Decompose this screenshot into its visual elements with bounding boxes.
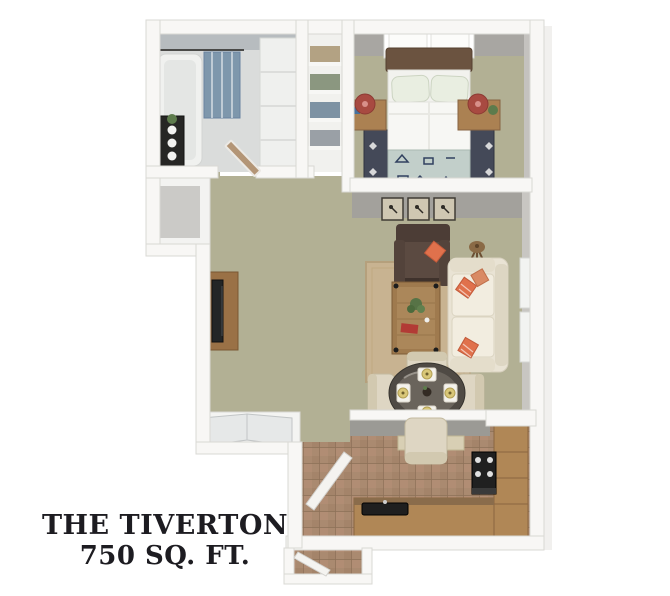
closet-shelf	[306, 62, 344, 66]
sofa-arm	[450, 258, 495, 272]
pillow	[391, 75, 429, 103]
lamp-top	[362, 101, 368, 107]
sliding-door-panel	[247, 414, 292, 446]
plan-title-line2: 750 SQ. FT.	[40, 541, 290, 572]
centerpiece-plant	[423, 386, 427, 390]
wall-kitchen-north-right	[486, 410, 536, 426]
bird-frame	[382, 198, 403, 220]
closet-shelf	[306, 146, 344, 150]
sofa-back	[495, 264, 508, 366]
entry-nook-wall-bottom	[284, 574, 372, 584]
plan-title: THE TIVERTON 750 SQ. FT.	[40, 510, 290, 572]
wall-closet-bedroom-divider	[342, 20, 354, 192]
bird-frame	[434, 198, 455, 220]
plant-icon	[167, 114, 177, 124]
wall-bottom-kitchen	[286, 536, 544, 550]
sofa-arm	[450, 358, 495, 372]
wall-right	[530, 20, 544, 550]
chair-back	[475, 374, 484, 414]
wall-bedroom-south	[350, 178, 532, 192]
towel-roll	[168, 139, 177, 148]
kitchen-counter-right	[494, 426, 528, 536]
wall-entry-left	[288, 442, 302, 548]
chair-back	[407, 352, 447, 361]
wall-bath-closet-divider	[296, 20, 308, 178]
wall-bottom-left	[196, 442, 302, 454]
wall-outer-shadow	[544, 26, 552, 550]
range-icon	[472, 452, 496, 494]
floor-plan-svg	[0, 0, 670, 596]
tall-cabinet	[260, 38, 298, 170]
closet-shelf	[306, 118, 344, 122]
towel-roll	[168, 152, 177, 161]
closet-shelf	[306, 90, 344, 94]
dining-chair	[405, 418, 447, 464]
plant-icon	[407, 305, 415, 313]
wall-left-lower	[196, 244, 210, 454]
plan-title-line1: THE TIVERTON	[40, 510, 290, 541]
lamp-top	[475, 101, 481, 107]
red-books	[401, 323, 419, 334]
floor-plan-image: THE TIVERTON 750 SQ. FT.	[0, 0, 670, 596]
hall-closet-face	[156, 186, 200, 238]
faucet-icon	[383, 500, 387, 504]
armchair	[394, 224, 450, 286]
wall-bath-south-left	[146, 166, 218, 178]
chair-back	[368, 374, 377, 414]
armchair-arm	[394, 240, 405, 286]
wall-art-frames	[382, 198, 455, 220]
bird-frame	[408, 198, 429, 220]
pillow	[430, 75, 468, 103]
coffee-table	[392, 282, 440, 354]
headboard	[386, 48, 472, 72]
towel-stack	[310, 74, 340, 90]
plant-icon	[417, 305, 425, 313]
wall-left-upper	[146, 20, 160, 254]
sofa	[448, 258, 508, 372]
chair-back	[405, 452, 447, 464]
sink-icon	[362, 503, 408, 515]
towel-stack	[310, 102, 340, 118]
plant-icon	[488, 105, 498, 115]
towel-stack	[310, 46, 340, 62]
cup-icon	[425, 318, 430, 323]
towel-roll	[168, 126, 177, 135]
towel-stack	[310, 130, 340, 146]
